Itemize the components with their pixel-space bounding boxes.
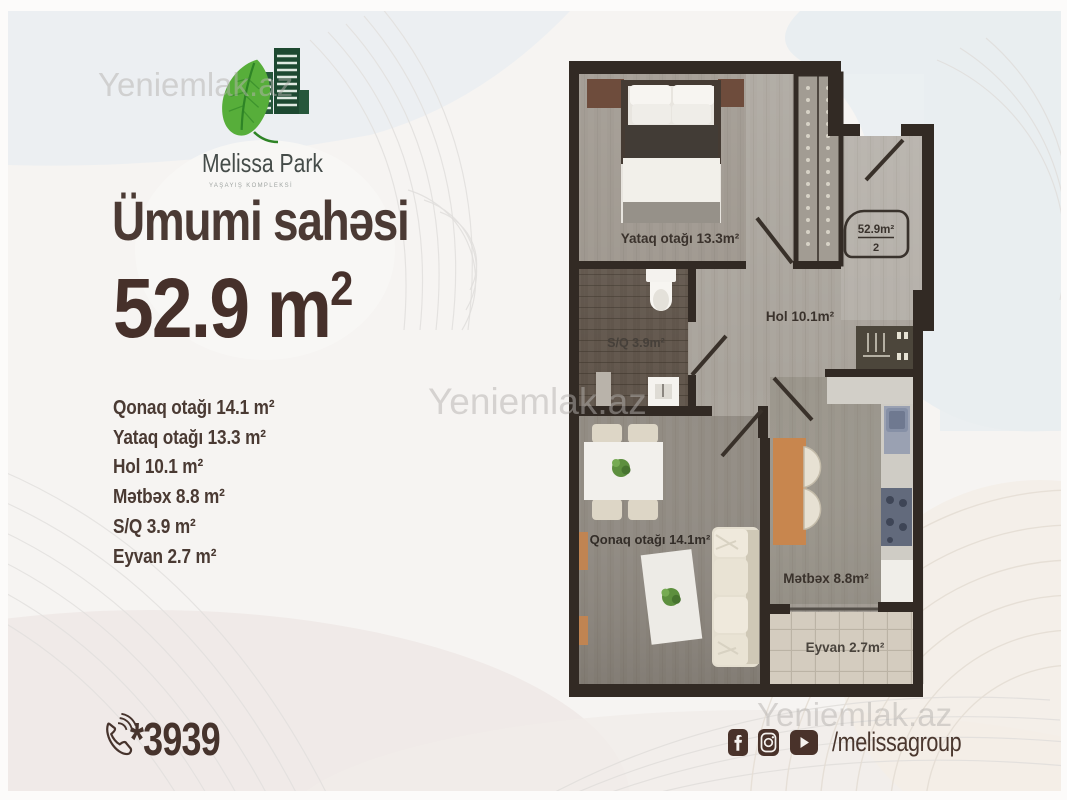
svg-text:Melissa Park: Melissa Park	[202, 148, 324, 178]
svg-text:Mətbəx 8.8m²: Mətbəx 8.8m²	[783, 571, 869, 586]
svg-text:Hol 10.1m²: Hol 10.1m²	[766, 309, 835, 324]
svg-text:Qonaq otağı 14.1m²: Qonaq otağı 14.1m²	[590, 532, 711, 547]
svg-text:Eyvan 2.7m²: Eyvan 2.7m²	[806, 640, 885, 655]
svg-text:2: 2	[873, 242, 879, 254]
svg-text:52.9m²: 52.9m²	[858, 224, 895, 236]
svg-text:Yataq otağı 13.3m²: Yataq otağı 13.3m²	[621, 231, 740, 246]
svg-text:S/Q 3.9m²: S/Q 3.9m²	[607, 336, 665, 350]
